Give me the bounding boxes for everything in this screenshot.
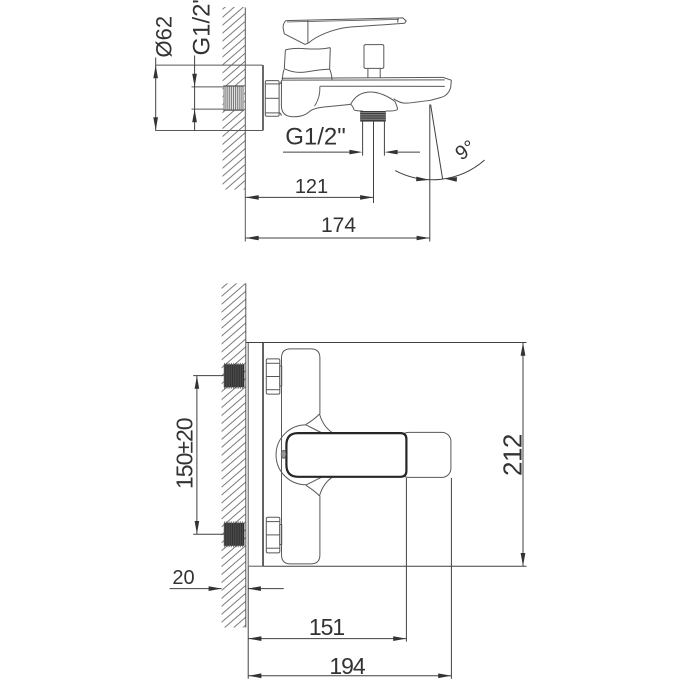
svg-text:20: 20: [172, 567, 194, 589]
svg-text:121: 121: [295, 176, 328, 198]
svg-text:194: 194: [329, 653, 366, 679]
svg-text:212: 212: [498, 434, 528, 476]
svg-text:G1/2": G1/2": [189, 0, 216, 56]
svg-text:151: 151: [309, 614, 345, 640]
svg-text:174: 174: [321, 214, 356, 237]
svg-text:G1/2": G1/2": [285, 124, 346, 151]
svg-text:150±20: 150±20: [172, 418, 198, 489]
svg-text:Ø62: Ø62: [152, 16, 177, 58]
